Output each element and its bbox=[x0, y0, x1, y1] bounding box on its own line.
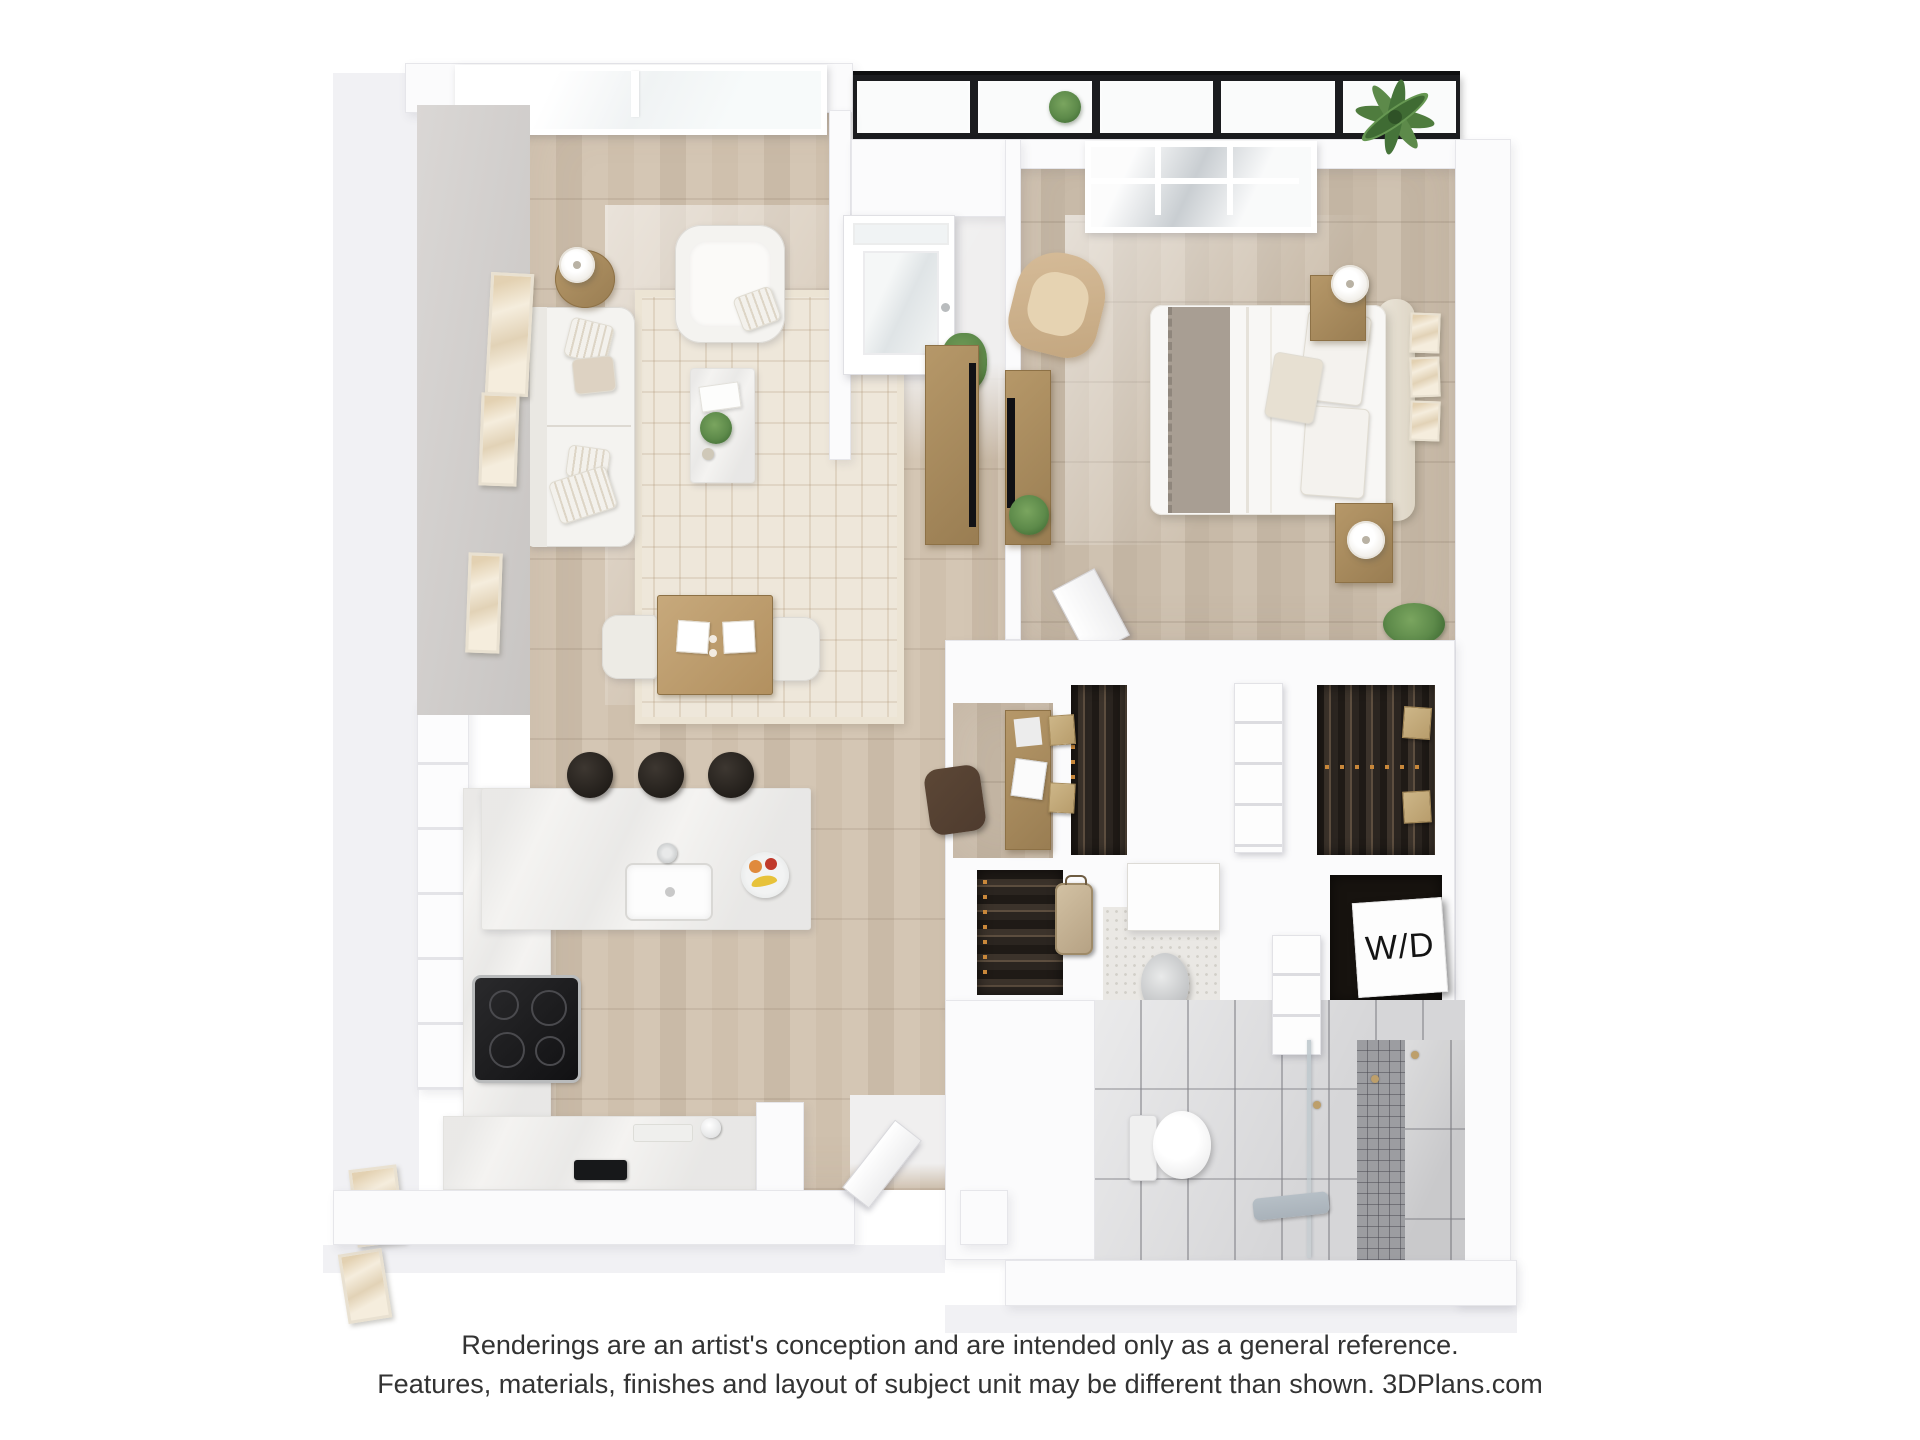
balcony-pane-4 bbox=[1221, 81, 1334, 133]
office-desk bbox=[1005, 710, 1051, 850]
place-setting-left bbox=[676, 620, 710, 654]
coffee-maker bbox=[574, 1160, 627, 1180]
kitchen-sink bbox=[625, 863, 713, 921]
bar-stool-1 bbox=[567, 752, 613, 798]
nightstand-lamp-top bbox=[1331, 265, 1369, 303]
shower-glass-panel bbox=[1307, 1040, 1311, 1258]
sill-plant-small bbox=[1049, 91, 1081, 123]
wall-art-1 bbox=[485, 272, 534, 397]
office-chair bbox=[923, 763, 988, 836]
wall-bottom-left-b bbox=[960, 1190, 1008, 1245]
table-lamp-living bbox=[559, 247, 595, 283]
suitcase bbox=[1055, 883, 1093, 955]
disclaimer: Renderings are an artist's conception an… bbox=[0, 1326, 1920, 1404]
bed-duvet-fold bbox=[1246, 307, 1249, 513]
burner-1 bbox=[489, 990, 519, 1020]
place-setting-right bbox=[722, 620, 756, 654]
burner-2 bbox=[531, 990, 567, 1026]
burner-3 bbox=[489, 1032, 525, 1068]
toilet-bowl bbox=[1153, 1111, 1211, 1179]
palm-plant-icon bbox=[1341, 65, 1449, 165]
bathroom-sliding-door bbox=[1272, 935, 1321, 1055]
sofa-seat-divider bbox=[547, 425, 631, 427]
disclaimer-line-2: Features, materials, finishes and layout… bbox=[0, 1365, 1920, 1404]
wall-bottom-left-a bbox=[333, 1190, 855, 1245]
closet-hall-interior bbox=[1071, 685, 1127, 855]
bedroom-desk-plant bbox=[1009, 495, 1049, 535]
bedroom-armchair-cushion bbox=[1022, 267, 1093, 341]
shower-valve bbox=[1371, 1075, 1379, 1083]
coffee-table-books bbox=[698, 381, 741, 412]
office-laptop bbox=[1011, 758, 1048, 800]
closet-bedroom-hanger-rail bbox=[1325, 765, 1427, 769]
disclaimer-line-1: Renderings are an artist's conception an… bbox=[0, 1326, 1920, 1365]
closet-entry-hanger-rail bbox=[983, 880, 987, 985]
wall-bottom-right bbox=[1005, 1260, 1517, 1306]
office-papers bbox=[1014, 717, 1043, 748]
shower-head bbox=[1411, 1051, 1419, 1059]
fruit-red bbox=[765, 858, 777, 870]
wall-art-2 bbox=[478, 392, 519, 486]
closet-entry-interior bbox=[977, 870, 1063, 995]
armchair-living bbox=[675, 225, 785, 343]
coffee-table bbox=[690, 368, 755, 483]
fruit-bowl bbox=[741, 852, 789, 898]
exterior-wall-left bbox=[333, 73, 419, 1273]
bedroom-art-2 bbox=[1409, 356, 1440, 397]
bed-throw-blanket bbox=[1168, 307, 1230, 513]
hall-media-console bbox=[925, 345, 979, 545]
wall-art-3 bbox=[465, 552, 502, 653]
kettle bbox=[701, 1118, 721, 1138]
shower-door-handle bbox=[1313, 1101, 1321, 1109]
closet-hall-box-1 bbox=[1048, 714, 1076, 746]
suitcase-handle bbox=[1065, 875, 1087, 885]
range-stove bbox=[475, 978, 578, 1080]
balcony-pane-1 bbox=[857, 81, 970, 133]
hall-tv bbox=[969, 363, 976, 527]
floor-plan-page: W/D Renderings are an artist's conceptio… bbox=[0, 0, 1920, 1440]
glassware bbox=[709, 635, 717, 643]
bedroom-corner-plant bbox=[1383, 603, 1445, 645]
bedroom-art-3 bbox=[1409, 400, 1440, 441]
bath-vanity bbox=[1127, 863, 1220, 931]
dining-table bbox=[657, 595, 773, 695]
dining-chair-right bbox=[770, 617, 820, 681]
shower-floor bbox=[1405, 1040, 1465, 1260]
washer-dryer-label: W/D bbox=[1364, 926, 1436, 970]
entry-door-glass bbox=[863, 251, 939, 355]
bar-stool-2 bbox=[638, 752, 684, 798]
window-mullion bbox=[631, 71, 639, 117]
bedroom-window bbox=[1085, 141, 1317, 233]
kitchen-counter-bottom bbox=[443, 1116, 756, 1190]
coffee-table-plant bbox=[700, 412, 732, 444]
shower-mosaic-wall bbox=[1357, 1040, 1405, 1260]
kitchen-faucet bbox=[657, 843, 677, 863]
balcony-pane-3 bbox=[1100, 81, 1213, 133]
kitchen-cabinet-run bbox=[417, 700, 469, 1090]
bedroom-monitor bbox=[1007, 398, 1015, 508]
fruit-orange bbox=[749, 860, 762, 873]
closet-bedroom-box-2 bbox=[1402, 790, 1432, 823]
closet-bedroom-box-1 bbox=[1402, 706, 1432, 740]
nightstand-lamp-bottom bbox=[1347, 521, 1385, 559]
coffee-table-vase bbox=[702, 448, 714, 460]
dining-chair-left bbox=[602, 615, 658, 679]
washer-dryer-unit: W/D bbox=[1352, 897, 1448, 998]
cutting-board bbox=[633, 1124, 693, 1142]
kitchen-entry-wall-stub bbox=[756, 1102, 804, 1192]
bar-stool-3 bbox=[708, 752, 754, 798]
sink-drain bbox=[665, 887, 675, 897]
entry-door-handle bbox=[941, 303, 950, 312]
floor-plan-3d: W/D bbox=[305, 55, 1560, 1325]
bedroom-window-mullion-h bbox=[1091, 178, 1299, 184]
exterior-wall-bottom-left bbox=[323, 1245, 945, 1273]
closet-hall-box-2 bbox=[1048, 782, 1076, 813]
burner-4 bbox=[535, 1036, 565, 1066]
wall-vestibule-top bbox=[851, 139, 1007, 217]
closet-sliding-doors bbox=[1234, 683, 1283, 853]
fruit-banana bbox=[750, 873, 778, 888]
bedroom-art-1 bbox=[1409, 312, 1440, 353]
sofa-pillow-2 bbox=[571, 355, 617, 395]
entry-door-transom bbox=[853, 223, 949, 245]
